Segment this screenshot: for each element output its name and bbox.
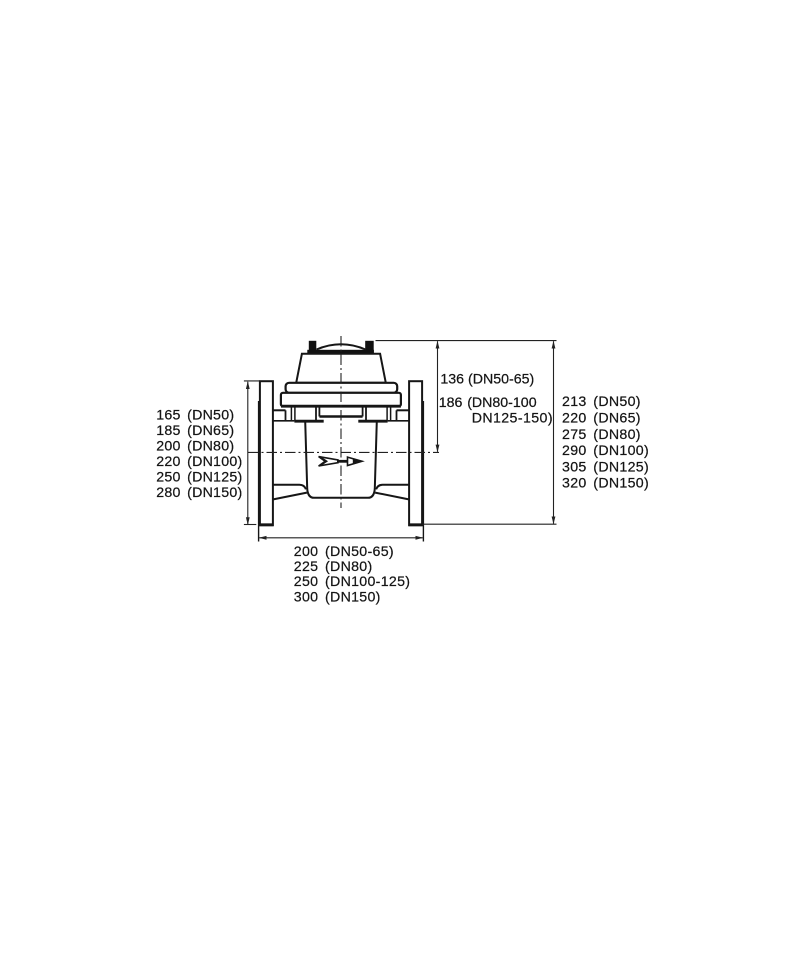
svg-text:(DN80-100: (DN80-100	[467, 395, 537, 411]
svg-text:290: 290	[562, 443, 587, 459]
svg-text:275: 275	[562, 427, 587, 443]
svg-text:(DN100): (DN100)	[187, 454, 242, 470]
svg-text:DN125-150): DN125-150)	[472, 411, 553, 427]
svg-text:213: 213	[562, 394, 587, 410]
svg-text:220: 220	[562, 411, 587, 427]
svg-text:305: 305	[562, 459, 587, 475]
svg-text:(DN50-65): (DN50-65)	[325, 544, 394, 560]
svg-text:(DN80): (DN80)	[593, 427, 641, 443]
svg-text:186: 186	[439, 395, 463, 411]
svg-text:(DN150): (DN150)	[187, 485, 242, 501]
svg-text:280: 280	[156, 485, 180, 501]
svg-text:225: 225	[294, 559, 319, 575]
svg-text:(DN80): (DN80)	[187, 439, 234, 455]
svg-text:300: 300	[294, 589, 319, 605]
svg-text:(DN125): (DN125)	[593, 459, 649, 475]
svg-text:(DN50-65): (DN50-65)	[468, 372, 534, 388]
svg-text:200: 200	[294, 544, 319, 560]
svg-text:165: 165	[156, 408, 180, 424]
svg-text:(DN150): (DN150)	[593, 476, 649, 492]
svg-text:220: 220	[156, 454, 180, 470]
svg-text:(DN50): (DN50)	[187, 408, 234, 424]
svg-text:(DN100): (DN100)	[593, 443, 649, 459]
svg-text:(DN100-125): (DN100-125)	[325, 574, 410, 590]
svg-text:250: 250	[156, 470, 180, 486]
svg-text:136: 136	[440, 372, 464, 388]
svg-text:320: 320	[562, 476, 587, 492]
svg-text:200: 200	[156, 439, 180, 455]
svg-text:(DN65): (DN65)	[593, 411, 641, 427]
svg-text:(DN150): (DN150)	[325, 589, 381, 605]
svg-text:(DN65): (DN65)	[187, 423, 234, 439]
svg-text:250: 250	[294, 574, 319, 590]
svg-text:(DN50): (DN50)	[593, 394, 641, 410]
svg-text:(DN80): (DN80)	[325, 559, 373, 575]
svg-text:(DN125): (DN125)	[187, 470, 242, 486]
svg-text:185: 185	[156, 423, 180, 439]
